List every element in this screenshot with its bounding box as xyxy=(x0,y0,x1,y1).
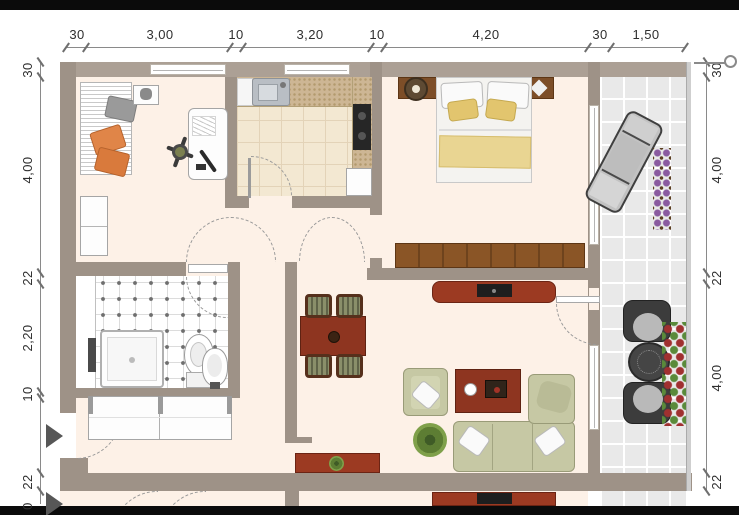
kitchen-cabinet-left xyxy=(237,78,253,106)
plant xyxy=(413,423,447,457)
wardrobe-post xyxy=(88,396,93,414)
dim-label-top: 4,20 xyxy=(464,27,508,43)
sofa-corner xyxy=(528,374,575,424)
sofa-main xyxy=(453,421,575,472)
shower xyxy=(100,330,164,388)
dining-door-arc xyxy=(299,217,365,262)
lower-balcony-strip xyxy=(600,491,686,506)
wall-bedroom-living xyxy=(367,268,588,280)
dim-label-left: 22 xyxy=(20,256,36,300)
tv xyxy=(477,284,512,297)
lower-tv xyxy=(477,493,512,504)
window-study xyxy=(150,64,226,75)
flower-box-mixed xyxy=(662,322,686,426)
wall-bedroom-left-b xyxy=(370,258,382,268)
sideboard-plant xyxy=(329,456,344,471)
towel-radiator xyxy=(88,338,96,372)
bedside-lamp xyxy=(404,77,428,101)
dim-label-top: 10 xyxy=(355,27,399,43)
bathroom-door-leaf xyxy=(188,264,228,273)
armchair xyxy=(403,368,448,416)
dim-label-top: 3,00 xyxy=(138,27,182,43)
dim-tick xyxy=(681,42,689,52)
dim-label-left: 4,00 xyxy=(20,148,36,192)
flower-box-purple xyxy=(653,148,671,230)
wall-living-stub xyxy=(297,437,312,443)
side-table-object xyxy=(140,88,152,100)
lower-entrance-arrow xyxy=(46,492,63,515)
double-bed xyxy=(436,77,532,183)
dim-label-right: 22 xyxy=(709,460,725,504)
dim-label-left: 30 xyxy=(20,48,36,92)
lower-door-arc xyxy=(112,491,158,506)
section-marker-circle xyxy=(724,55,737,68)
dining-chair xyxy=(336,294,363,318)
top-black-bar xyxy=(0,0,739,10)
bathroom-door-arc xyxy=(186,276,228,318)
dim-label-top: 30 xyxy=(55,27,99,43)
dim-label-right: 22 xyxy=(709,256,725,300)
balcony-door-leaf xyxy=(556,296,600,303)
kitchen-sink xyxy=(252,78,290,106)
wall-left xyxy=(60,62,76,413)
desk-papers xyxy=(192,116,216,136)
table-box xyxy=(485,380,507,398)
table-bowl xyxy=(328,331,340,343)
sofa-cushion xyxy=(535,379,573,414)
window-living-balcony xyxy=(589,345,599,430)
bedroom-sideboard xyxy=(395,243,585,268)
section-marker-line xyxy=(694,62,726,64)
balcony-railing xyxy=(686,62,691,491)
basin-tap xyxy=(210,382,220,389)
bed-cushion-yellow xyxy=(485,98,517,122)
entrance-arrow xyxy=(46,424,63,448)
dim-label-top: 10 xyxy=(214,27,258,43)
dining-chair xyxy=(305,294,332,318)
dim-label-top: 3,20 xyxy=(288,27,332,43)
wall-kitchen-bottom-b xyxy=(292,196,382,208)
floor-plan: 30 3,00 10 3,20 10 4,20 30 1,50 30 4,00 … xyxy=(0,0,739,515)
wardrobe-post xyxy=(158,396,163,414)
dim-label-right: 30 xyxy=(709,48,725,92)
dining-chair xyxy=(305,354,332,378)
mug xyxy=(464,383,477,396)
hall-door-arc xyxy=(186,217,276,262)
dim-label-left: 0 xyxy=(20,484,36,515)
dim-label-top: 1,50 xyxy=(624,27,668,43)
wardrobe-post xyxy=(227,396,232,414)
wall-bath-top xyxy=(60,262,186,276)
dim-label-left: 2,20 xyxy=(20,316,36,360)
dim-line-top xyxy=(66,47,685,48)
cooktop xyxy=(353,104,371,150)
kitchen-cabinet-right xyxy=(346,168,372,196)
wall-bath-right xyxy=(228,262,240,398)
wall-bottom xyxy=(60,473,692,491)
coffee-table xyxy=(455,369,521,413)
bed-blanket xyxy=(439,135,532,169)
lower-door-arc xyxy=(160,491,206,506)
dining-table xyxy=(300,316,366,356)
balcony-door-arc xyxy=(556,303,598,345)
kitchen-door-arc xyxy=(251,156,292,196)
dining-chair xyxy=(336,354,363,378)
lower-wall-stub xyxy=(285,491,299,506)
desk-object xyxy=(196,164,206,170)
dim-label-right: 4,00 xyxy=(709,356,725,400)
wall-living-left xyxy=(285,262,297,443)
dim-label-right: 4,00 xyxy=(709,148,725,192)
dim-label-top: 30 xyxy=(578,27,622,43)
bottom-black-bar xyxy=(0,506,739,515)
dim-label-left: 10 xyxy=(20,372,36,416)
wardrobe xyxy=(80,196,108,256)
washbasin xyxy=(202,348,228,386)
window-kitchen xyxy=(284,64,350,75)
bed-cushion-yellow xyxy=(447,98,479,122)
